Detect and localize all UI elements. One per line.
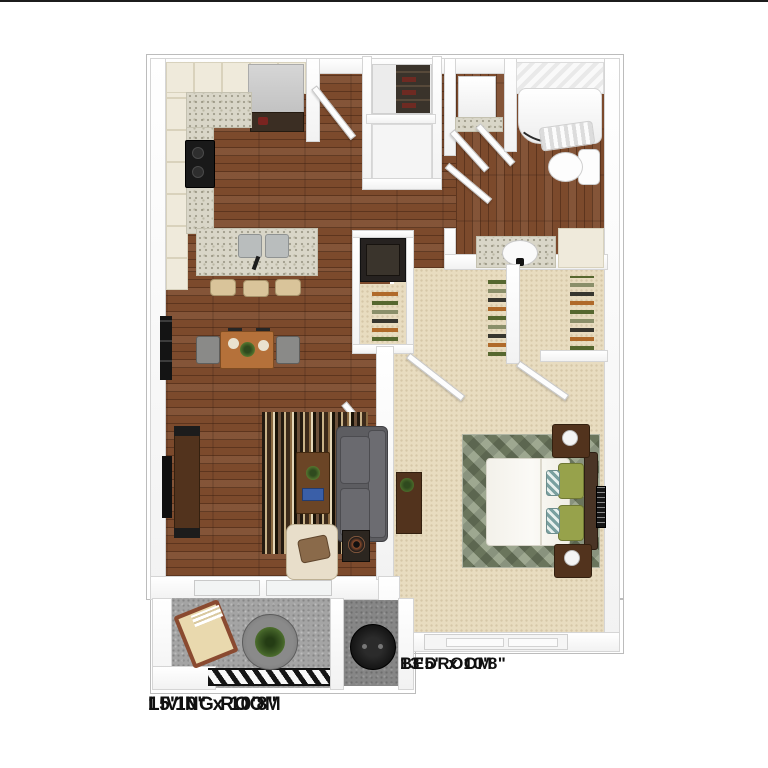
balcony-railing xyxy=(208,668,336,686)
bar-stool-2 xyxy=(243,280,269,297)
accent-pillow-bottom xyxy=(546,508,560,534)
media-console-cap-bottom xyxy=(174,528,200,538)
floor-plan-canvas: LIVING ROOM 15'10" x 10'8" BEDROOM 13'5"… xyxy=(0,0,768,768)
wall-plaque xyxy=(596,486,606,528)
linen-cubby xyxy=(372,124,432,180)
bed-pillow-top xyxy=(558,463,584,499)
grill xyxy=(350,624,396,670)
stove-burner-1 xyxy=(192,147,204,159)
linen-cabinet xyxy=(558,228,604,268)
grill-knob-1 xyxy=(362,644,367,649)
sofa-seat-cushion-2 xyxy=(340,488,370,536)
top-border-line xyxy=(0,0,768,2)
stove-burner-2 xyxy=(192,166,204,178)
sofa-seat-cushion-1 xyxy=(340,436,370,484)
entry-wall xyxy=(306,58,320,142)
desk-plant xyxy=(400,478,414,492)
media-console xyxy=(174,430,200,534)
coffee-table xyxy=(296,452,330,514)
dining-plate-1 xyxy=(228,338,239,349)
kitchen-counter-items xyxy=(258,117,268,125)
dining-plate-2 xyxy=(258,340,269,351)
lamp-top xyxy=(562,430,578,446)
lamp-bottom xyxy=(564,550,580,566)
coffee-table-plant xyxy=(306,466,320,480)
kitchen-counter-topstrip xyxy=(186,92,252,128)
dining-chair-right xyxy=(276,336,300,364)
tv xyxy=(162,456,172,518)
closet-left-hangers xyxy=(488,276,506,356)
closet-divider-wall xyxy=(506,264,520,364)
center-closet-right-wall xyxy=(406,230,414,352)
utility-closet-bottom-wall xyxy=(362,178,442,190)
bedroom-dimensions: 13'5" x 10'8" xyxy=(400,653,506,674)
kitchen-left-cabinets xyxy=(166,92,188,290)
water-heater-door-panel xyxy=(366,244,400,276)
bar-stool-3 xyxy=(275,279,301,296)
utility-closet-divider xyxy=(366,114,436,124)
washer xyxy=(458,76,496,120)
closet-bottom-wall xyxy=(540,350,608,362)
bar-stool-1 xyxy=(210,279,236,296)
speaker-cone xyxy=(348,536,365,553)
bed-pillow-bottom xyxy=(558,505,584,541)
refrigerator xyxy=(248,64,304,114)
living-window-left xyxy=(194,580,260,596)
storage-right-wall xyxy=(398,598,414,690)
bed-duvet-fold xyxy=(540,459,542,545)
toilet-bowl xyxy=(548,152,583,182)
accent-pillow-top xyxy=(546,470,560,496)
storage-divider-wall xyxy=(330,598,344,690)
wall-panel xyxy=(160,316,172,380)
island-sink-right xyxy=(265,234,289,258)
bedroom-window-pane-left xyxy=(446,638,504,647)
center-closet-left-wall xyxy=(352,230,360,352)
balcony-bottom-left-wall xyxy=(152,666,216,690)
dining-centerpiece-plant xyxy=(240,342,255,357)
sofa-back-cushions xyxy=(368,430,386,538)
center-closet-top-wall xyxy=(352,230,414,238)
living-room-dimensions: 15'10" x 10'8" xyxy=(148,693,277,717)
coat-closet-hangers xyxy=(372,287,398,341)
grill-knob-2 xyxy=(378,644,383,649)
hall-bathroom-wall-top xyxy=(444,58,456,156)
living-window-right xyxy=(266,580,332,596)
media-console-cap-top xyxy=(174,426,200,436)
coffee-table-books xyxy=(302,488,324,501)
dining-chair-left xyxy=(196,336,220,364)
shoes xyxy=(402,70,416,108)
closet-right-hangers xyxy=(570,276,594,350)
patio-plant xyxy=(255,627,285,657)
island-sink-left xyxy=(238,234,262,258)
bedroom-window-pane-right xyxy=(508,638,558,647)
